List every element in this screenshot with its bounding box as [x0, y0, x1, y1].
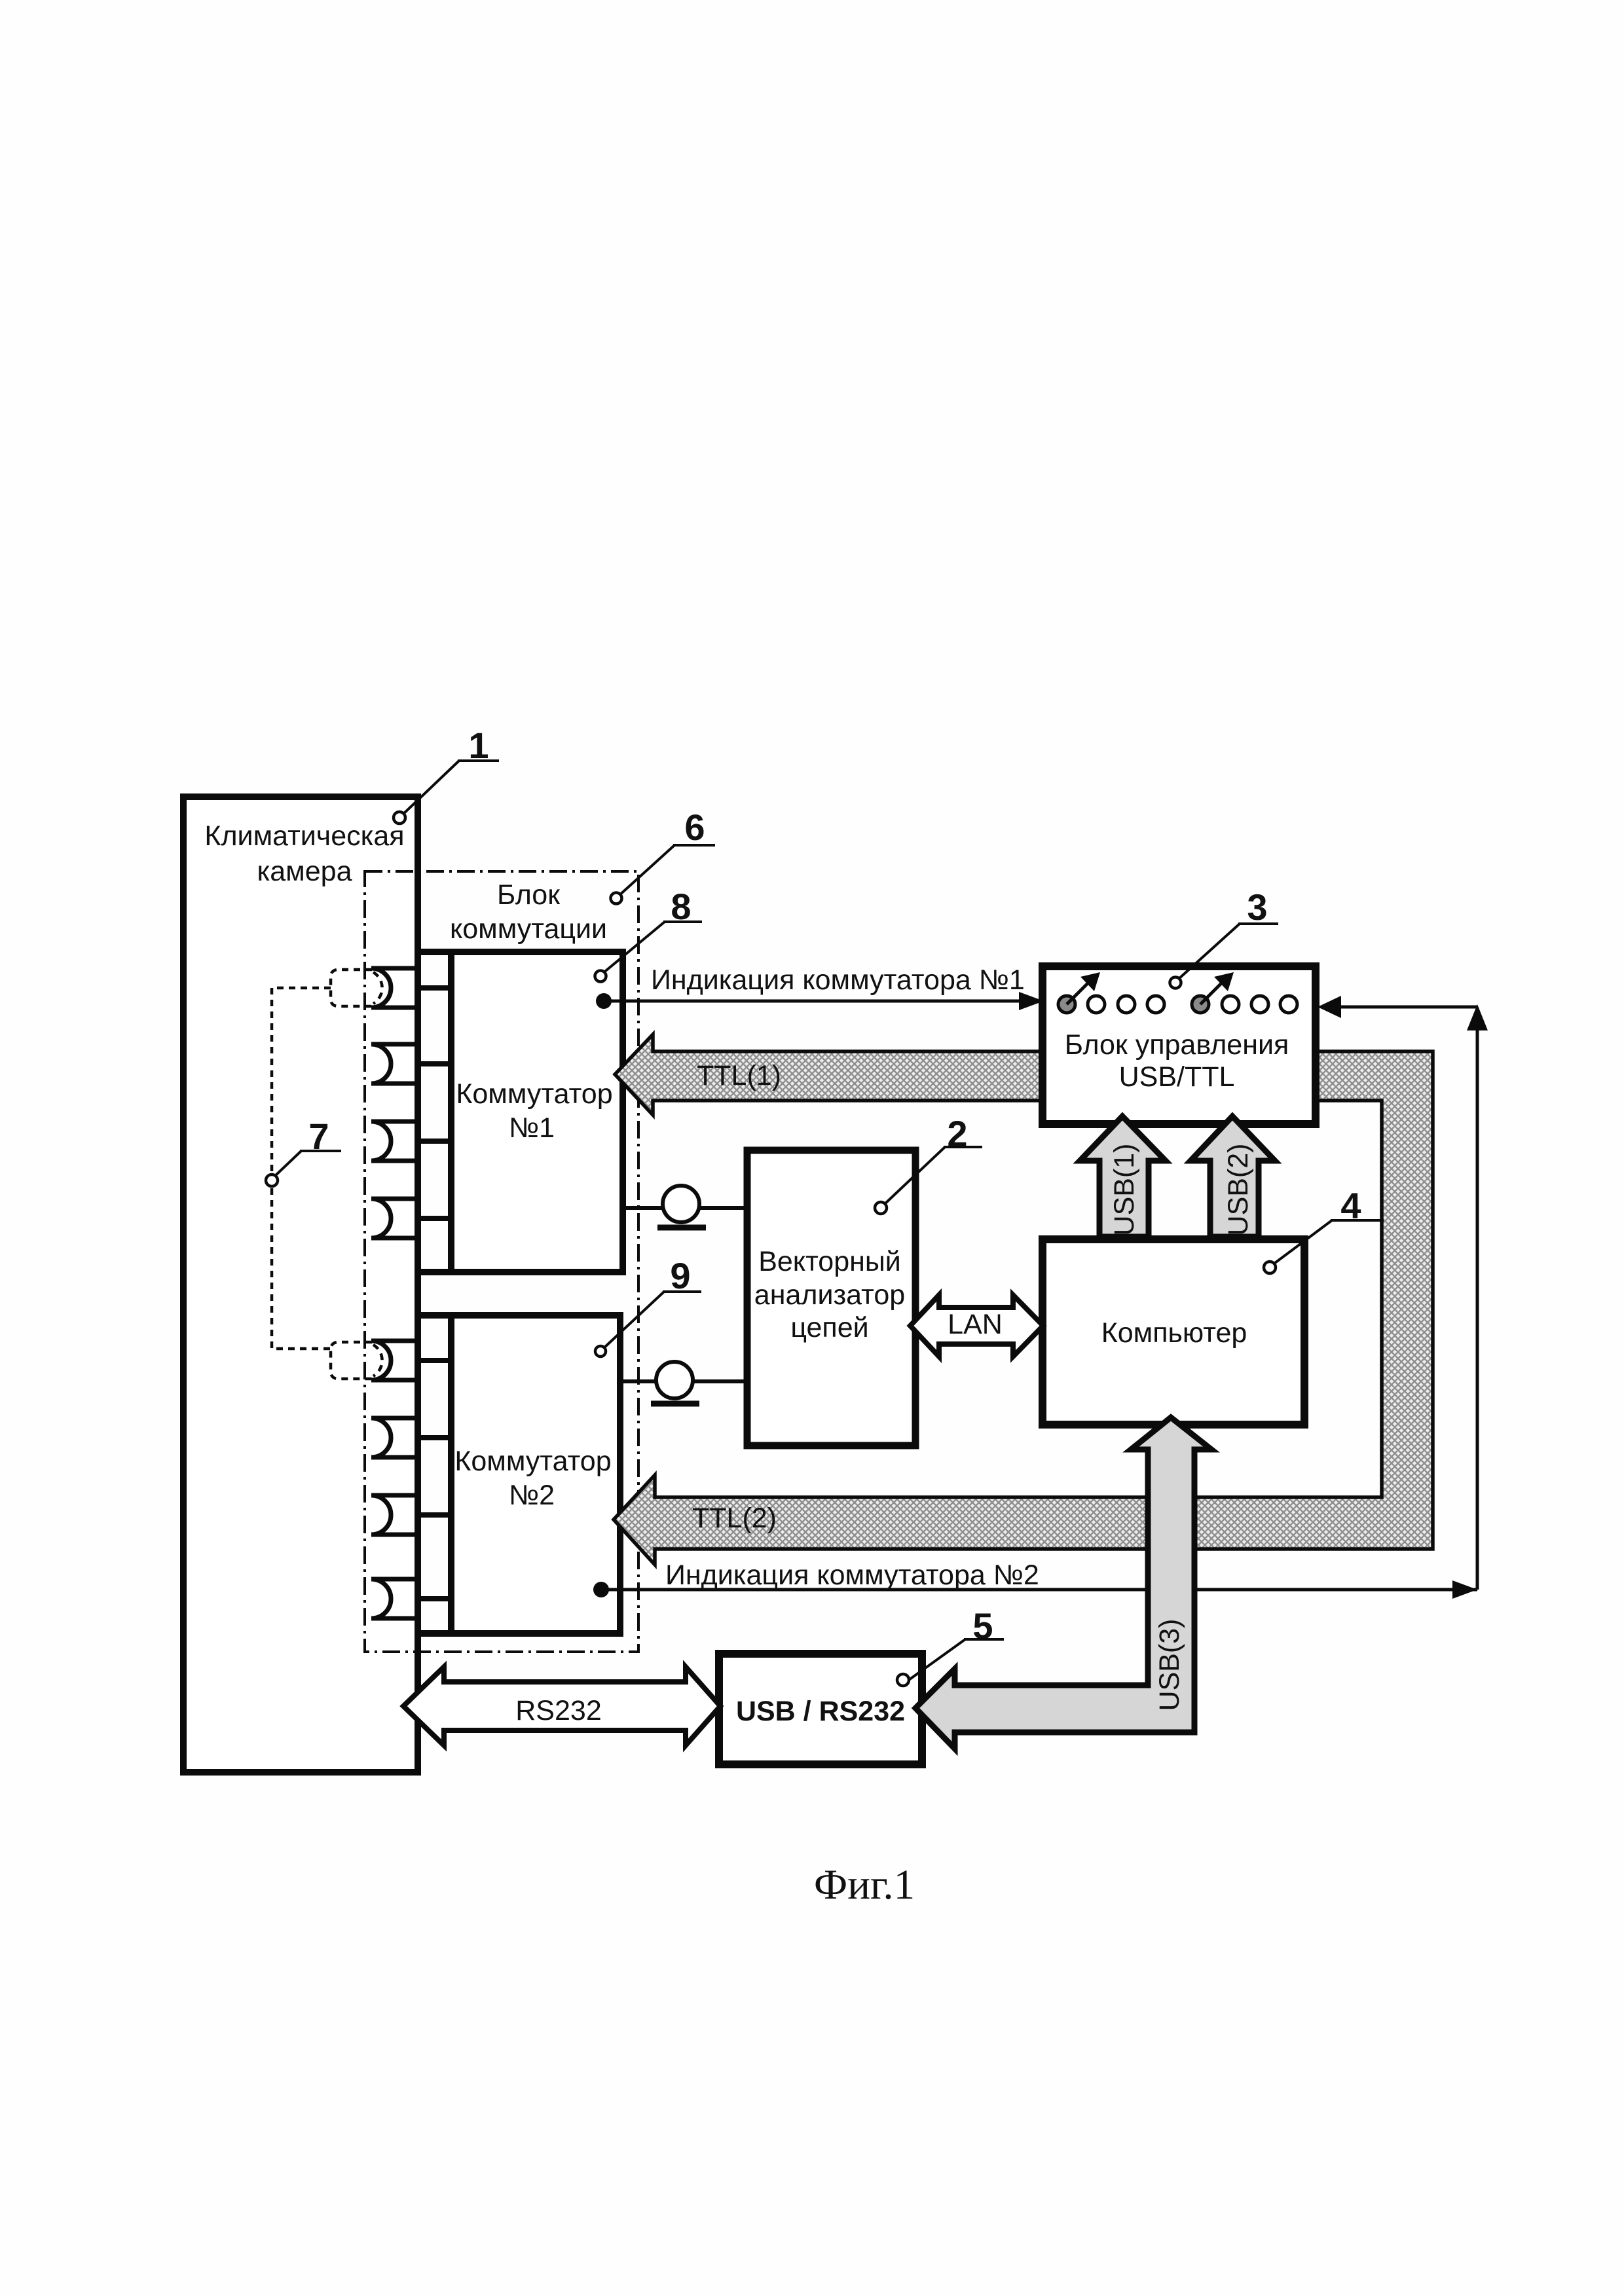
svg-text:цепей: цепей [790, 1312, 868, 1343]
svg-text:коммутации: коммутации [450, 913, 607, 945]
svg-text:Компьютер: Компьютер [1101, 1317, 1247, 1349]
svg-text:TTL(1): TTL(1) [697, 1060, 781, 1091]
svg-text:Климатическая: Климатическая [204, 820, 404, 852]
svg-text:Фиг.1: Фиг.1 [814, 1861, 915, 1908]
svg-text:№1: №1 [509, 1112, 555, 1144]
svg-text:3: 3 [1247, 886, 1267, 928]
svg-text:RS232: RS232 [515, 1695, 601, 1726]
svg-text:камера: камера [257, 856, 352, 887]
svg-text:9: 9 [670, 1255, 690, 1296]
svg-text:№2: №2 [509, 1480, 555, 1511]
svg-text:6: 6 [684, 807, 705, 848]
svg-text:Коммутатор: Коммутатор [456, 1078, 612, 1110]
svg-text:Блок: Блок [497, 879, 561, 911]
svg-text:USB/TTL: USB/TTL [1119, 1061, 1235, 1093]
svg-text:USB / RS232: USB / RS232 [736, 1696, 905, 1727]
svg-text:TTL(2): TTL(2) [692, 1503, 777, 1534]
svg-text:LAN: LAN [948, 1309, 1003, 1340]
svg-text:USB(3): USB(3) [1154, 1619, 1185, 1711]
svg-text:Блок управления: Блок управления [1065, 1029, 1289, 1061]
svg-text:анализатор: анализатор [754, 1279, 905, 1311]
svg-text:Индикация коммутатора №1: Индикация коммутатора №1 [651, 964, 1025, 996]
svg-text:Коммутатор: Коммутатор [454, 1446, 611, 1477]
svg-text:Векторный: Векторный [758, 1246, 901, 1277]
svg-text:USB(2): USB(2) [1223, 1144, 1254, 1236]
svg-text:Индикация коммутатора №2: Индикация коммутатора №2 [665, 1559, 1039, 1591]
svg-text:USB(1): USB(1) [1109, 1144, 1140, 1236]
